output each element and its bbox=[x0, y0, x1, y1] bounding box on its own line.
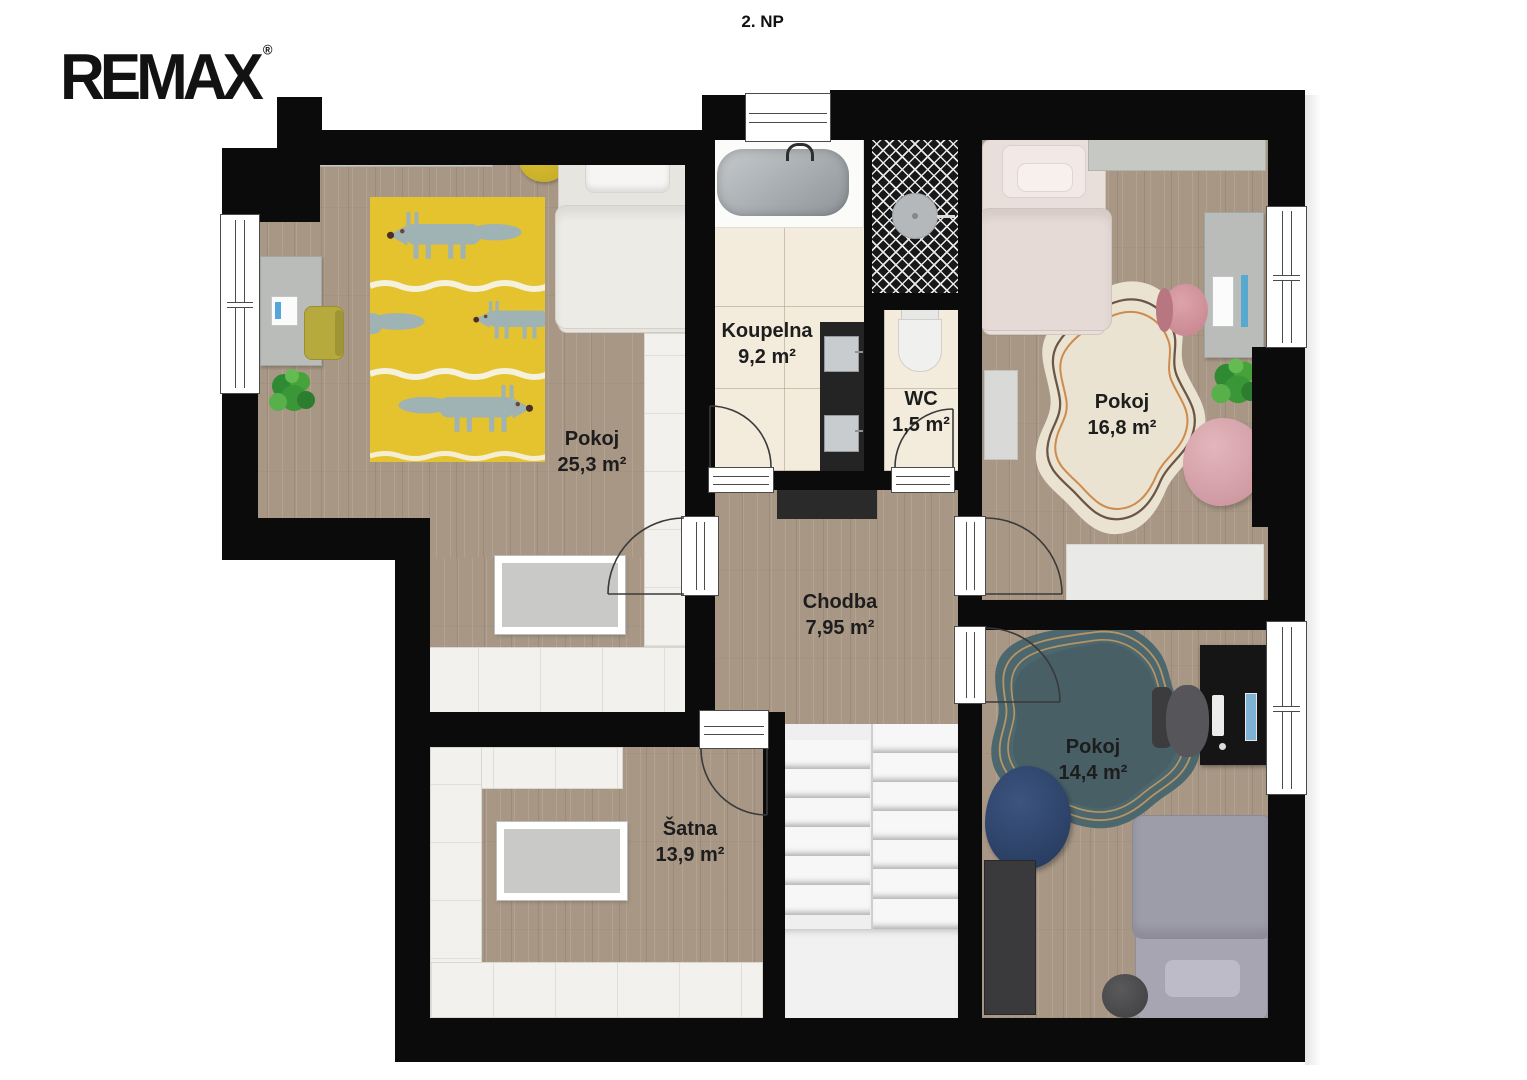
closet-row-bottom bbox=[430, 962, 763, 1018]
wall bbox=[958, 600, 1305, 630]
wall bbox=[864, 300, 884, 473]
laptop bbox=[271, 296, 298, 326]
window-sash bbox=[1273, 706, 1300, 712]
label-pokoj2: Pokoj 16,8 m² bbox=[1088, 389, 1157, 441]
window bbox=[1266, 621, 1307, 795]
window bbox=[1266, 206, 1307, 348]
desk-chair-yellow bbox=[304, 306, 344, 360]
door-pokoj2 bbox=[954, 516, 986, 596]
tub-faucet bbox=[786, 143, 814, 161]
stair-landing bbox=[785, 929, 958, 1018]
room-area: 16,8 m² bbox=[1088, 415, 1157, 441]
side-table-round bbox=[1102, 974, 1148, 1018]
shower-head bbox=[892, 193, 938, 239]
hall-mat bbox=[777, 486, 877, 519]
wardrobe-dark bbox=[984, 860, 1036, 1015]
desk bbox=[1204, 212, 1264, 358]
pillow bbox=[1164, 959, 1240, 998]
stair-step bbox=[873, 899, 958, 929]
low-dresser bbox=[1066, 544, 1264, 602]
closet-island bbox=[497, 822, 627, 900]
chair-back bbox=[335, 310, 343, 356]
wardrobe-tall bbox=[644, 333, 690, 647]
wall bbox=[864, 138, 872, 296]
wall bbox=[395, 540, 430, 1062]
stair-step bbox=[873, 724, 958, 753]
label-pokoj3: Pokoj 14,4 m² bbox=[1059, 734, 1128, 786]
label-satna: Šatna 13,9 m² bbox=[656, 816, 725, 868]
wall bbox=[702, 95, 745, 140]
pillow-small bbox=[1017, 163, 1074, 192]
monitor bbox=[1212, 276, 1234, 327]
stair-step bbox=[873, 811, 958, 840]
room-name: Pokoj bbox=[558, 426, 627, 452]
potted-plant bbox=[264, 364, 322, 422]
remax-logo-text: REMAX bbox=[60, 41, 259, 113]
sink bbox=[824, 415, 859, 452]
blanket bbox=[978, 208, 1111, 332]
room-name: Chodba bbox=[803, 589, 877, 615]
stair-step bbox=[785, 769, 870, 798]
door-satna bbox=[699, 710, 769, 749]
monitor bbox=[1245, 693, 1257, 741]
room-area: 9,2 m² bbox=[721, 344, 812, 370]
room-name: Koupelna bbox=[721, 318, 812, 344]
door-sill bbox=[713, 476, 769, 485]
door-pokoj3 bbox=[954, 626, 986, 704]
chair-seat bbox=[1166, 685, 1209, 757]
stair-step bbox=[785, 740, 870, 769]
room-area: 1,5 m² bbox=[892, 412, 950, 438]
blanket bbox=[1132, 815, 1272, 939]
door-sill bbox=[966, 522, 975, 591]
plan-shadow bbox=[1305, 95, 1321, 1065]
floor-plan-page: 2. NP REMAX® bbox=[0, 0, 1527, 1080]
sink bbox=[824, 336, 859, 373]
tap bbox=[855, 351, 863, 353]
room-area: 13,9 m² bbox=[656, 842, 725, 868]
door-sill bbox=[704, 726, 764, 735]
wall bbox=[763, 747, 785, 1018]
label-pokoj1: Pokoj 25,3 m² bbox=[558, 426, 627, 478]
stair-step bbox=[873, 840, 958, 869]
stair-step bbox=[785, 827, 870, 856]
stair-step bbox=[873, 753, 958, 782]
window bbox=[220, 214, 260, 394]
label-wc: WC 1,5 m² bbox=[892, 386, 950, 438]
label-chodba: Chodba 7,95 m² bbox=[803, 589, 877, 641]
label-koupelna: Koupelna 9,2 m² bbox=[721, 318, 812, 370]
tub-basin bbox=[717, 149, 848, 216]
window-frame bbox=[749, 113, 828, 123]
shower-arm bbox=[937, 215, 955, 218]
room-area: 7,95 m² bbox=[803, 615, 877, 641]
floor-title: 2. NP bbox=[741, 12, 784, 32]
room-name: Šatna bbox=[656, 816, 725, 842]
door-sill bbox=[696, 522, 705, 591]
door-sill bbox=[896, 476, 951, 485]
monitor-screen bbox=[1241, 275, 1248, 327]
stair-step bbox=[873, 869, 958, 899]
wall bbox=[1252, 347, 1305, 527]
vanity-double-sink bbox=[820, 322, 864, 472]
door-wc bbox=[891, 467, 955, 493]
office-chair bbox=[1152, 678, 1214, 770]
shower-drain bbox=[912, 213, 918, 219]
toilet-bowl bbox=[898, 319, 942, 372]
stair-step bbox=[873, 782, 958, 811]
gray-rug-bench bbox=[495, 556, 625, 634]
door-sill bbox=[966, 632, 975, 699]
desk-chair-pink bbox=[1156, 280, 1212, 340]
wall bbox=[395, 1018, 1305, 1062]
tap bbox=[855, 430, 863, 432]
room-name: WC bbox=[892, 386, 950, 412]
fox-rug bbox=[370, 197, 545, 462]
stair-step bbox=[785, 798, 870, 827]
toilet bbox=[898, 306, 940, 370]
chair-back bbox=[1156, 288, 1173, 331]
bed-single bbox=[1135, 817, 1268, 1020]
wall bbox=[280, 130, 708, 165]
remax-logo: REMAX® bbox=[60, 40, 269, 115]
stair-step bbox=[785, 885, 870, 915]
window-sash bbox=[227, 302, 254, 308]
window-sash bbox=[1273, 275, 1300, 281]
registered-mark: ® bbox=[263, 42, 273, 58]
bed-single bbox=[558, 139, 695, 333]
mouse bbox=[1219, 743, 1226, 750]
room-area: 25,3 m² bbox=[558, 452, 627, 478]
wall bbox=[685, 130, 715, 747]
bathtub bbox=[702, 138, 864, 228]
door-pokoj1 bbox=[681, 516, 719, 596]
room-name: Pokoj bbox=[1088, 389, 1157, 415]
room-name: Pokoj bbox=[1059, 734, 1128, 760]
room-area: 14,4 m² bbox=[1059, 760, 1128, 786]
laptop-screen bbox=[275, 302, 281, 319]
wall-shelf bbox=[1088, 138, 1266, 171]
staircase bbox=[785, 724, 958, 1018]
keyboard bbox=[1212, 695, 1224, 736]
door-koupelna bbox=[708, 467, 774, 493]
blanket bbox=[555, 205, 699, 329]
stair-step bbox=[785, 856, 870, 885]
wall bbox=[830, 90, 1305, 140]
nightstand bbox=[984, 370, 1018, 460]
sideboard bbox=[415, 647, 690, 713]
window bbox=[745, 93, 831, 142]
